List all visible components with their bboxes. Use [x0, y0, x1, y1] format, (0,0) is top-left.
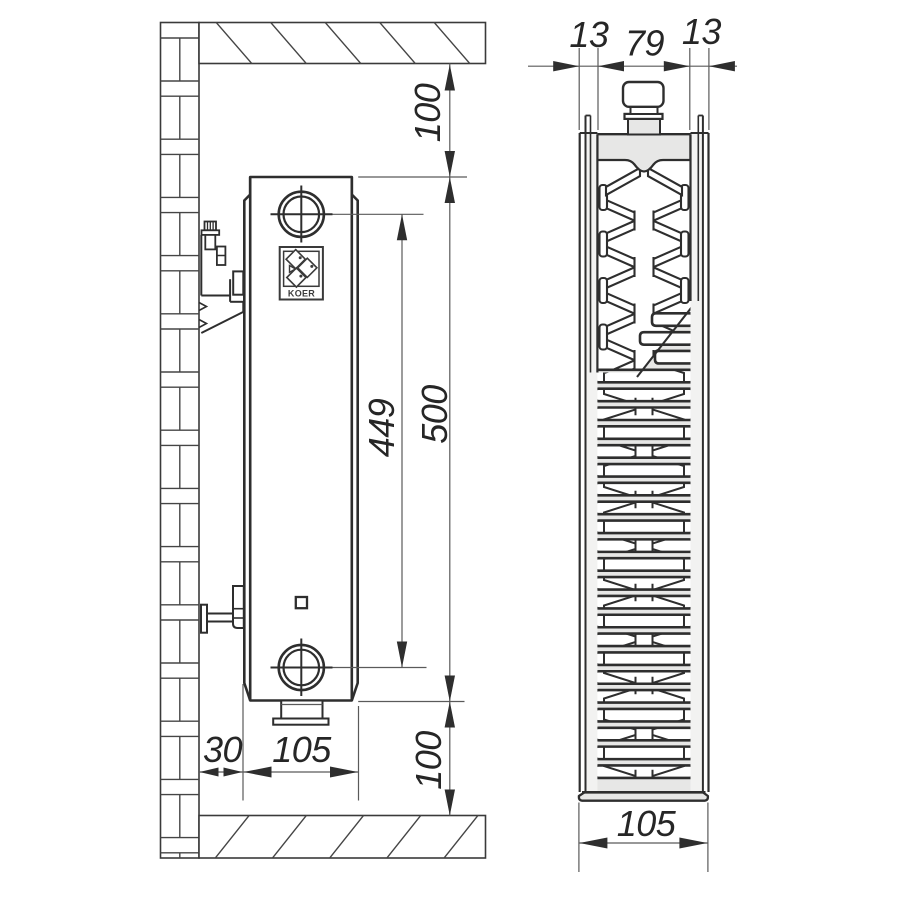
- svg-text:13: 13: [682, 11, 722, 52]
- svg-text:105: 105: [617, 803, 677, 844]
- svg-text:30: 30: [203, 729, 243, 770]
- svg-text:105: 105: [272, 729, 332, 770]
- svg-text:79: 79: [625, 23, 665, 64]
- svg-text:KOER: KOER: [288, 289, 315, 299]
- svg-text:13: 13: [569, 14, 609, 55]
- svg-text:449: 449: [361, 398, 402, 457]
- svg-text:500: 500: [414, 385, 455, 444]
- svg-text:100: 100: [407, 83, 448, 142]
- svg-text:100: 100: [408, 731, 449, 790]
